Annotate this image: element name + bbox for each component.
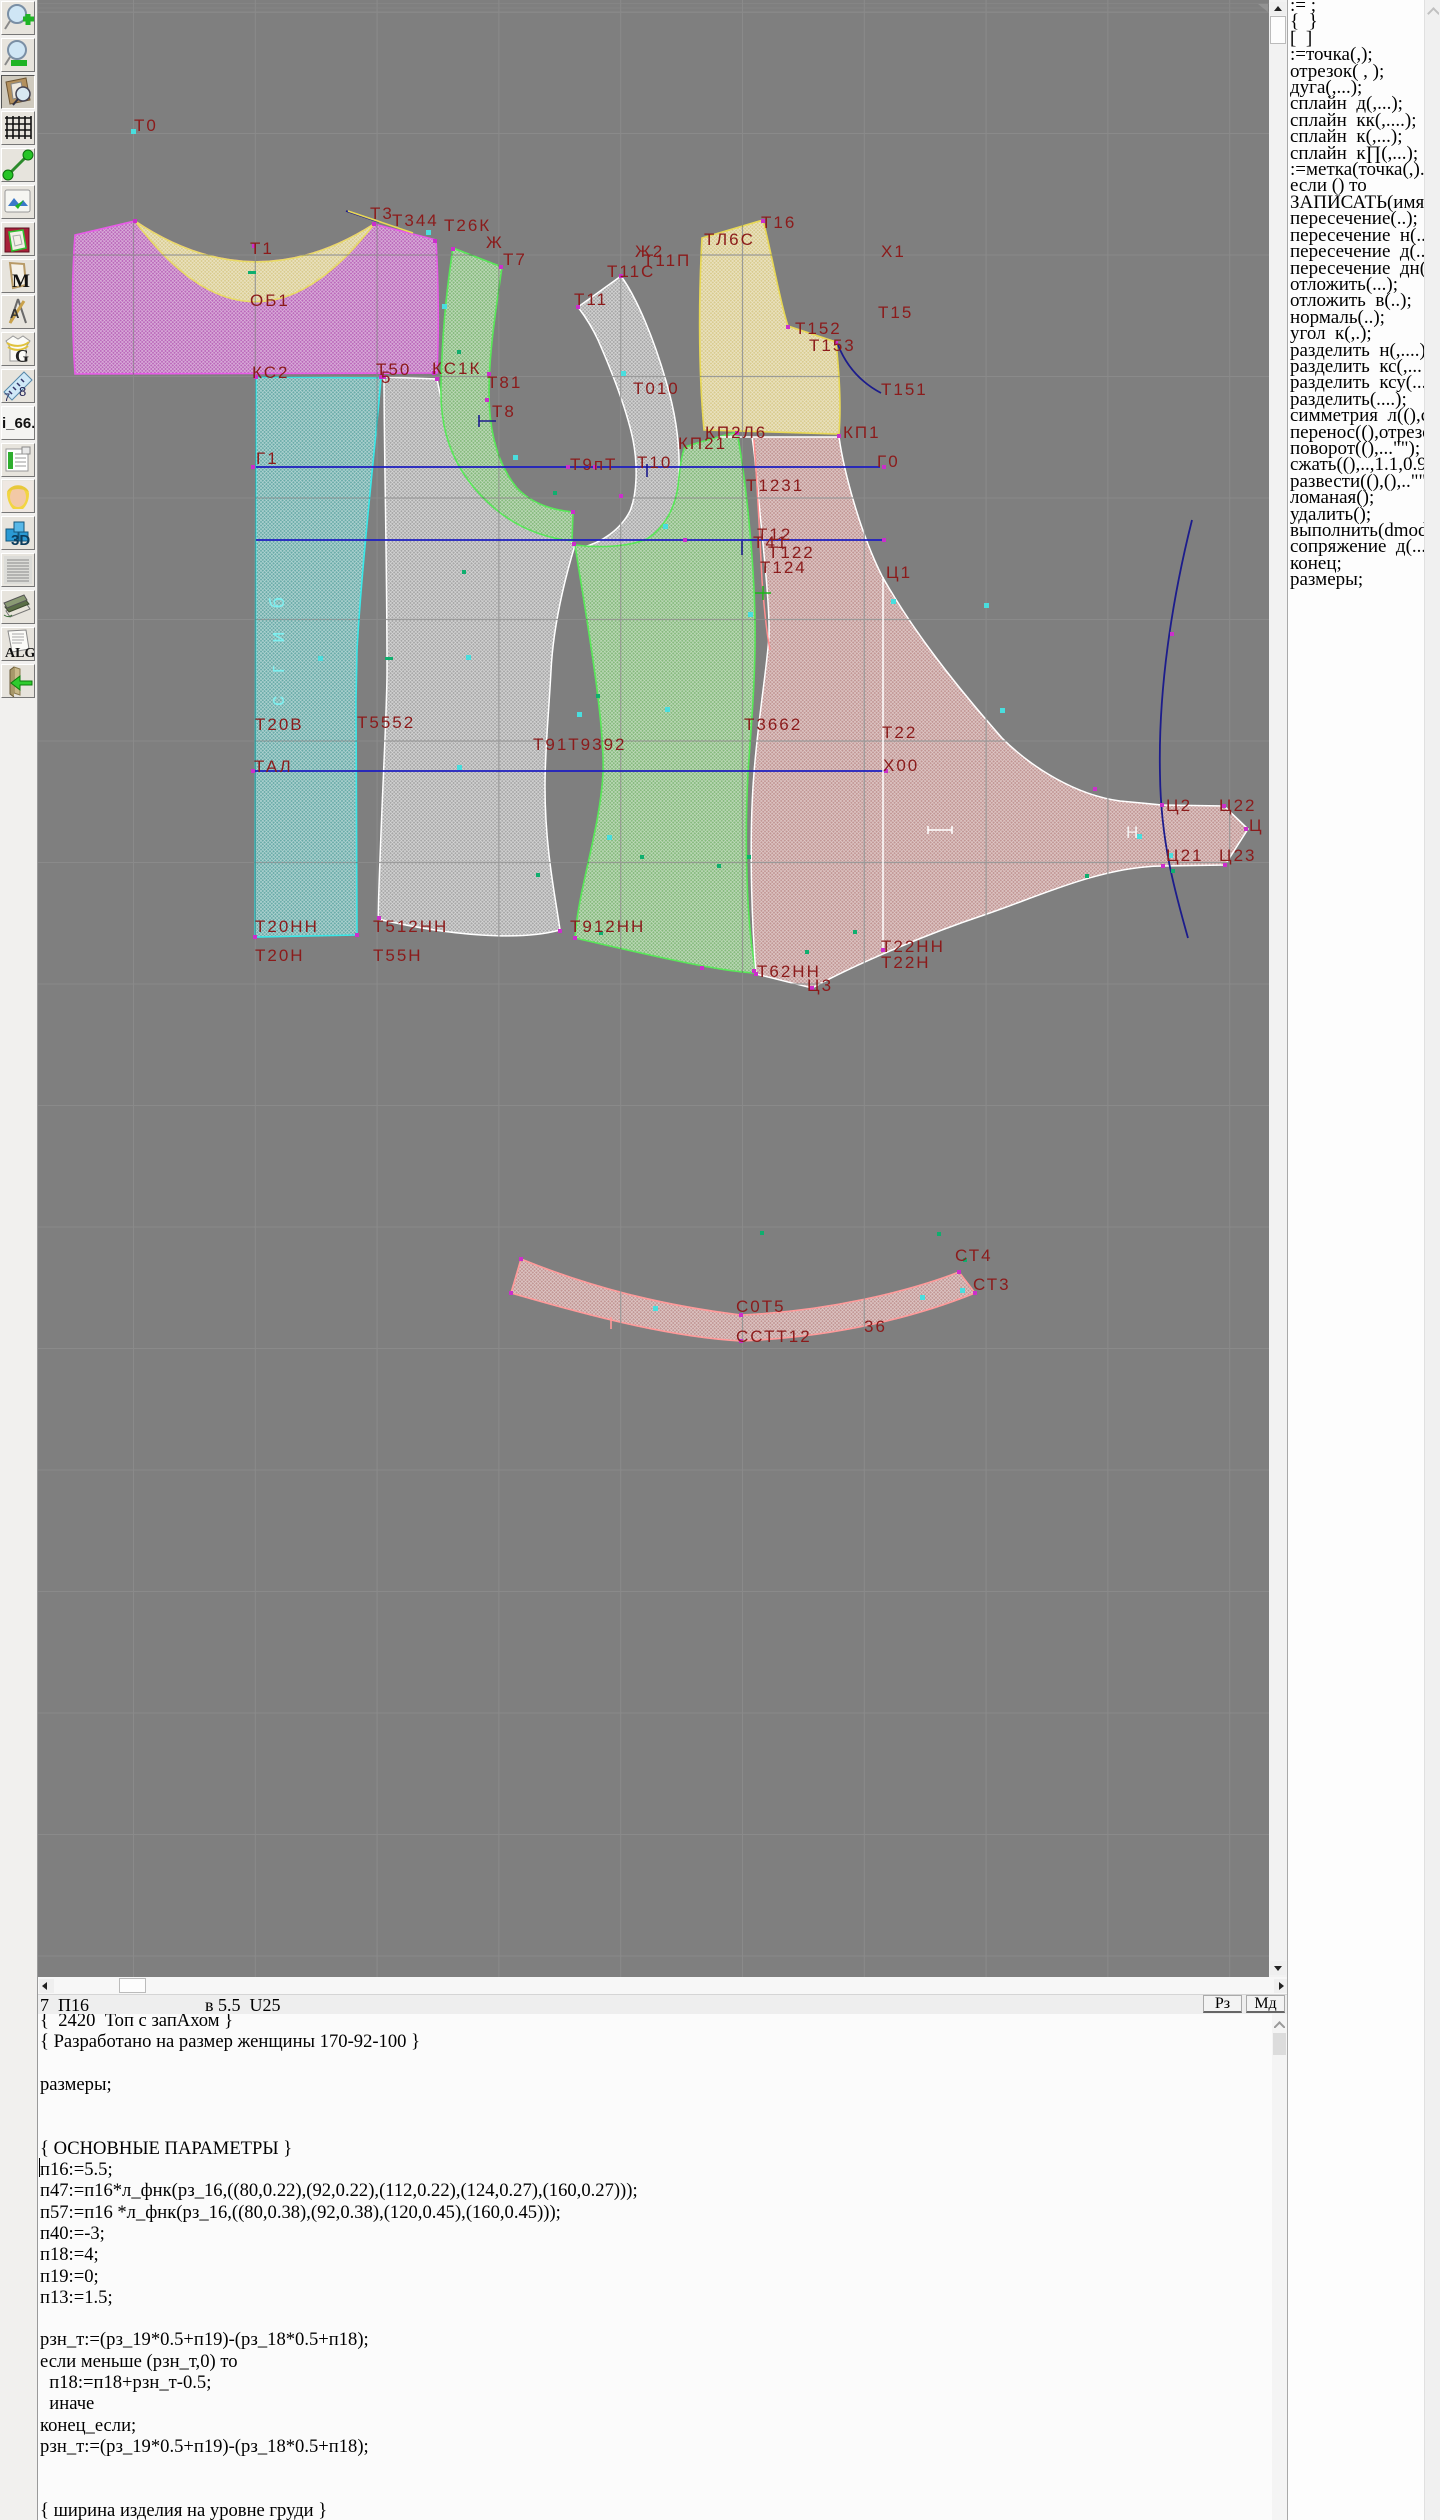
svg-text:Т15: Т15 bbox=[878, 303, 913, 322]
svg-text:Т20НН: Т20НН bbox=[255, 917, 319, 936]
svg-text:ALG: ALG bbox=[5, 646, 34, 660]
svg-text:сгиб: сгиб bbox=[267, 574, 289, 706]
svg-text:Ц23: Ц23 bbox=[1219, 846, 1257, 865]
svg-text:Ц2: Ц2 bbox=[1166, 796, 1192, 815]
svg-text:M: M bbox=[12, 271, 30, 292]
svg-text:Г1: Г1 bbox=[256, 449, 279, 468]
svg-text:ТЛ6С: ТЛ6С bbox=[704, 230, 755, 249]
svg-text:Т344: Т344 bbox=[392, 211, 439, 230]
svg-text:С0Т5: С0Т5 bbox=[736, 1297, 786, 1316]
svg-text:Т26К: Т26К bbox=[444, 216, 491, 235]
svg-text:Т22: Т22 bbox=[882, 723, 917, 742]
svg-text:Х1: Х1 bbox=[881, 242, 906, 261]
svg-text:Т91Т9392: Т91Т9392 bbox=[533, 735, 627, 754]
svg-text:5: 5 bbox=[381, 368, 392, 387]
svg-text:Т912НН: Т912НН bbox=[570, 917, 645, 936]
svg-text:КС1К: КС1К bbox=[432, 359, 481, 378]
svg-text:Т55Н: Т55Н bbox=[373, 946, 423, 965]
svg-text:Т3: Т3 bbox=[370, 204, 394, 223]
svg-text:Т151: Т151 bbox=[881, 380, 928, 399]
svg-text:Т9пТ: Т9пТ bbox=[570, 455, 617, 474]
svg-text:G: G bbox=[15, 346, 29, 365]
svg-text:A: A bbox=[10, 306, 20, 321]
svg-text:Т0: Т0 bbox=[134, 116, 158, 135]
svg-text:Ж: Ж bbox=[486, 233, 504, 252]
svg-text:3D: 3D bbox=[11, 532, 30, 549]
svg-text:Т153: Т153 bbox=[809, 336, 856, 355]
svg-text:Т11П: Т11П bbox=[643, 251, 691, 270]
svg-text:Т11: Т11 bbox=[574, 290, 608, 309]
svg-text:Т7: Т7 bbox=[503, 250, 527, 269]
svg-text:Ц: Ц bbox=[1249, 816, 1264, 835]
svg-text:Т512НН: Т512НН bbox=[373, 917, 448, 936]
svg-text:СТ3: СТ3 bbox=[973, 1275, 1011, 1294]
svg-text:Т3662: Т3662 bbox=[744, 715, 802, 734]
svg-text:ОБ1: ОБ1 bbox=[250, 291, 290, 310]
svg-text:8: 8 bbox=[19, 384, 26, 399]
svg-text:Ц22: Ц22 bbox=[1219, 796, 1257, 815]
svg-text:Т10: Т10 bbox=[637, 453, 672, 472]
svg-text:Т1231: Т1231 bbox=[746, 476, 804, 495]
svg-text:Ц1: Ц1 bbox=[886, 563, 912, 582]
svg-text:СТ4: СТ4 bbox=[955, 1246, 993, 1265]
svg-text:Т81: Т81 bbox=[487, 373, 522, 392]
svg-text:Т16: Т16 bbox=[761, 213, 796, 232]
svg-text:7: 7 bbox=[4, 392, 10, 402]
svg-text:Т8: Т8 bbox=[492, 402, 516, 421]
svg-text:КС2: КС2 bbox=[252, 363, 289, 382]
svg-text:Т20Н: Т20Н bbox=[255, 946, 305, 965]
svg-text:Т1: Т1 bbox=[250, 239, 274, 258]
svg-text:Ц3: Ц3 bbox=[807, 976, 833, 995]
svg-text:ТАЛ: ТАЛ bbox=[254, 757, 293, 776]
svg-text:Т22Н: Т22Н bbox=[881, 953, 931, 972]
svg-text:ССТТ12: ССТТ12 bbox=[736, 1327, 812, 1346]
svg-text:Ц21: Ц21 bbox=[1166, 846, 1204, 865]
svg-text:Н: Н bbox=[1126, 823, 1140, 842]
svg-text:КП21: КП21 bbox=[678, 434, 727, 453]
svg-text:КП1: КП1 bbox=[843, 423, 881, 442]
svg-text:Г0: Г0 bbox=[877, 452, 900, 471]
svg-text:Т124: Т124 bbox=[760, 558, 807, 577]
svg-text:Т010: Т010 bbox=[633, 379, 680, 398]
svg-text:Т5552: Т5552 bbox=[357, 713, 415, 732]
svg-text:Т20В: Т20В bbox=[255, 715, 304, 734]
svg-text:36: 36 bbox=[864, 1317, 887, 1336]
svg-text:Х00: Х00 bbox=[883, 756, 919, 775]
